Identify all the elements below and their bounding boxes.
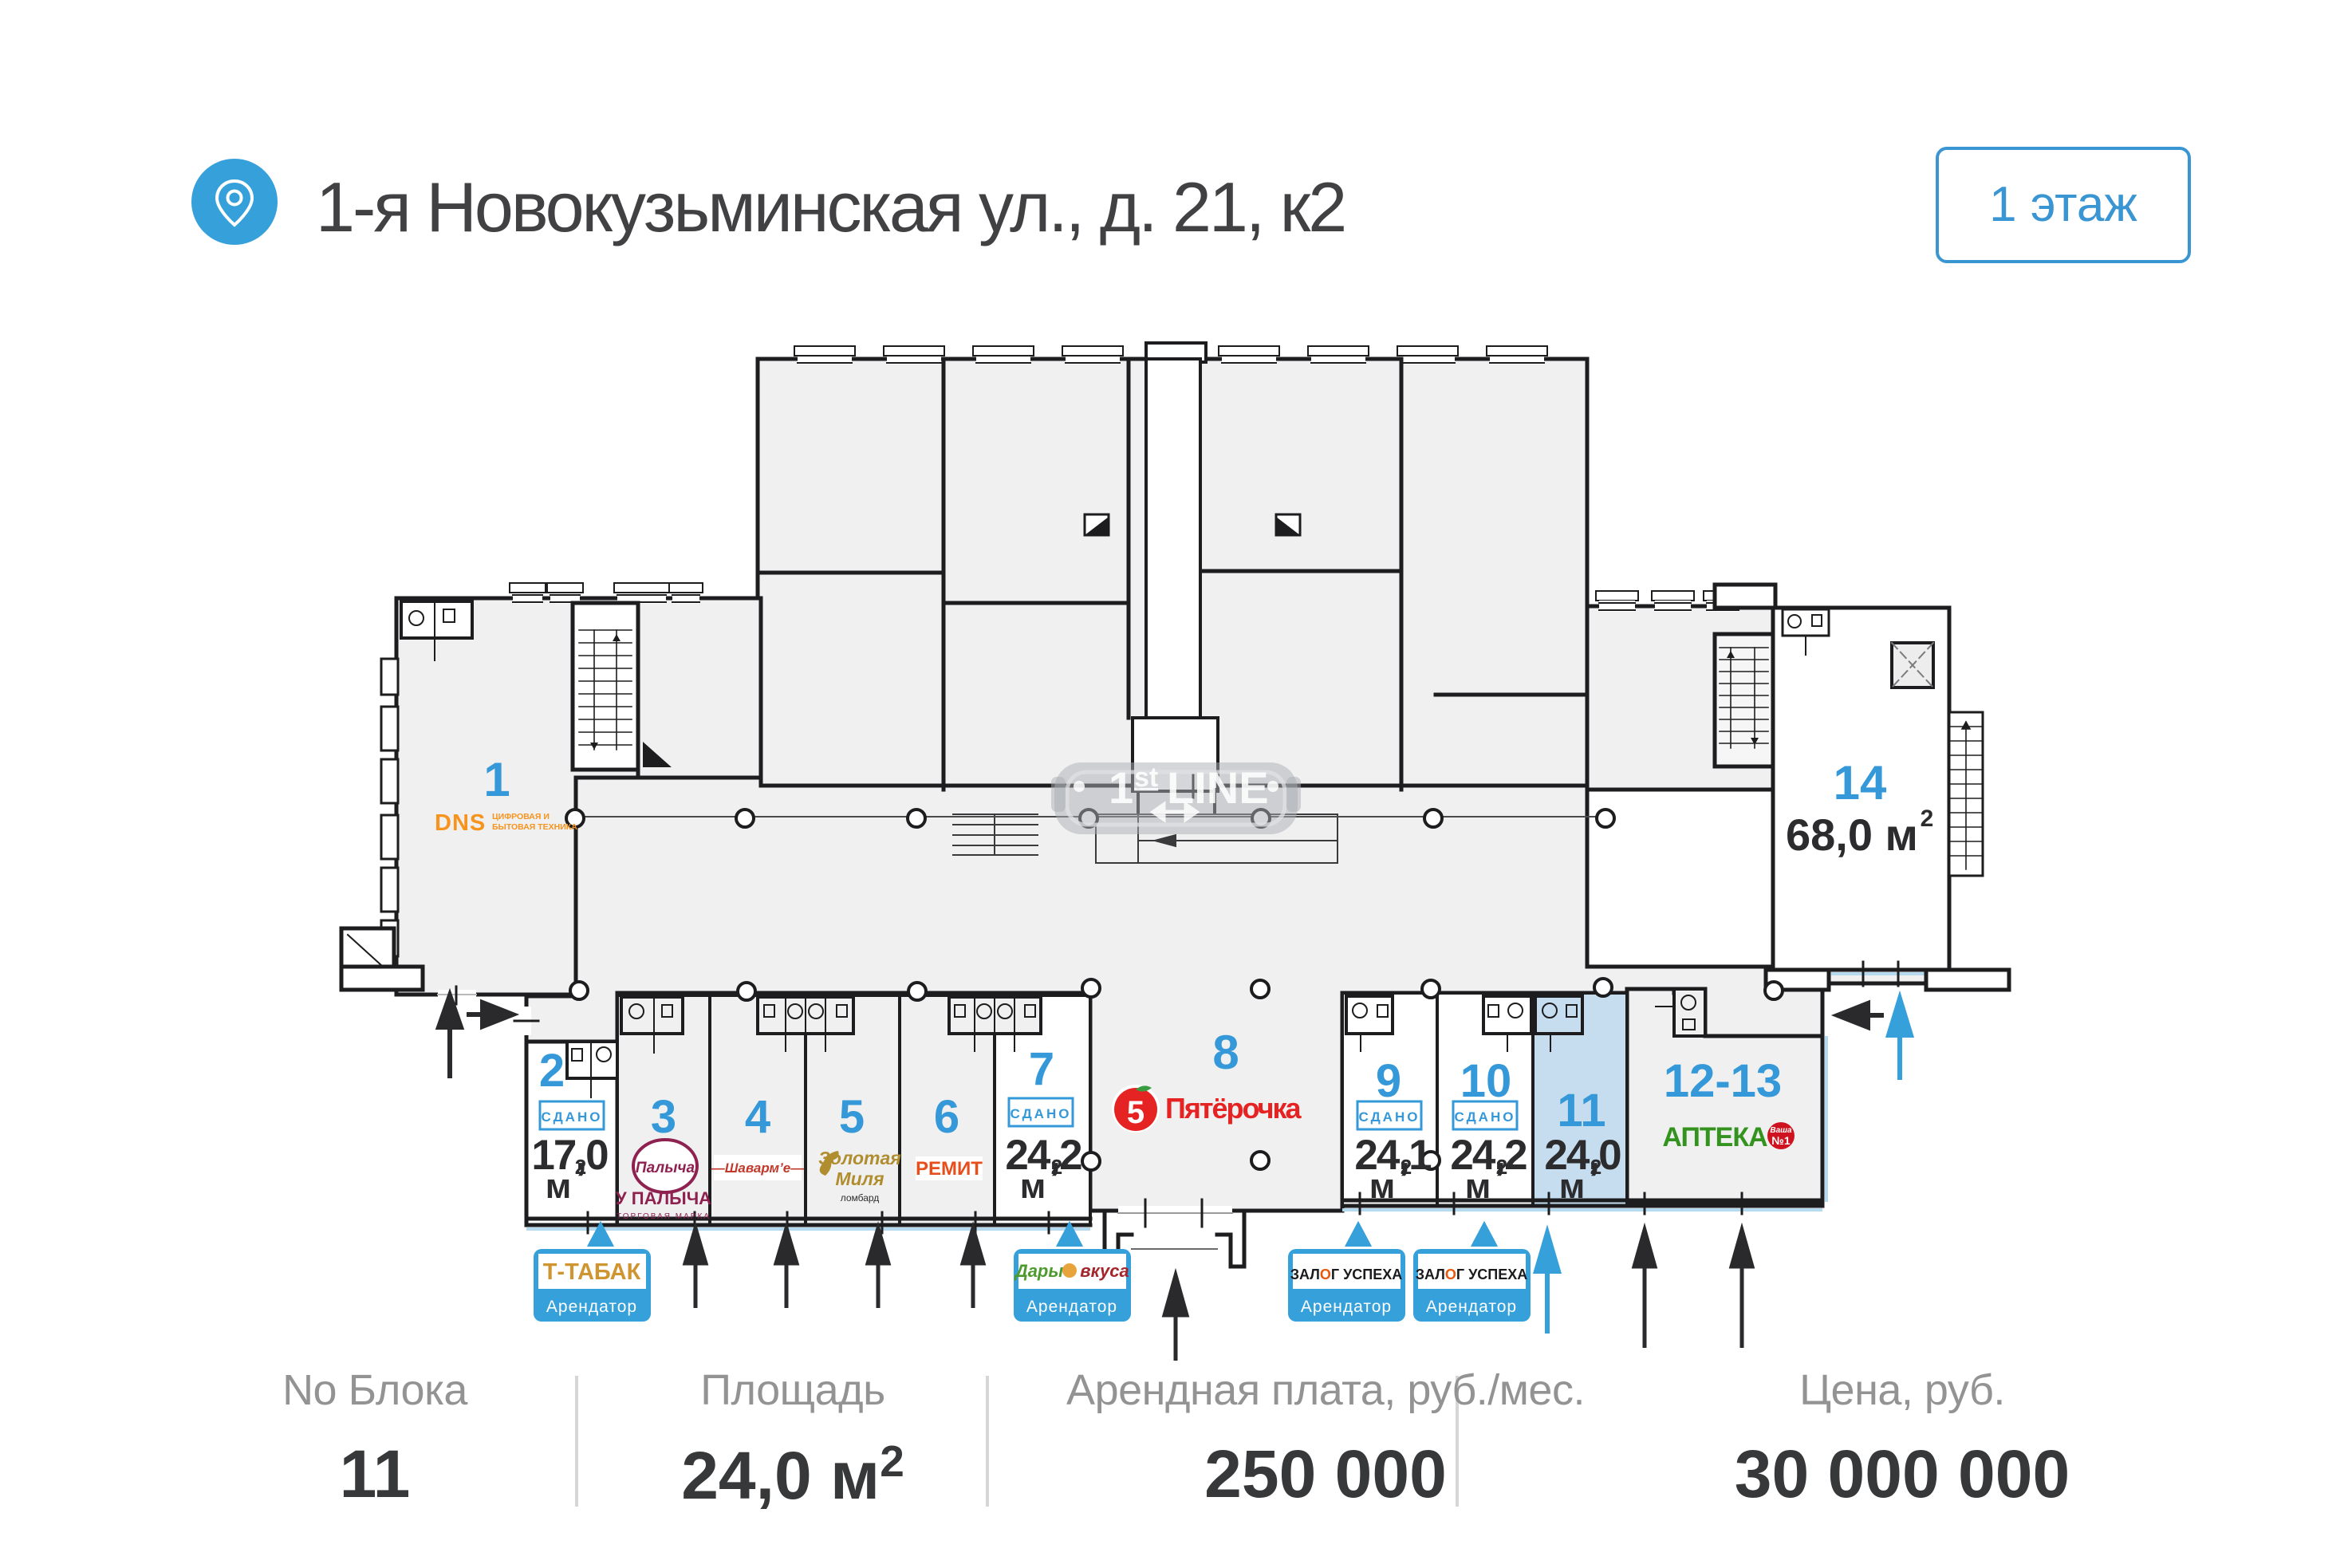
svg-text:DNS: DNS: [435, 810, 486, 836]
svg-text:ТОРГОВАЯ МАРКА: ТОРГОВАЯ МАРКА: [617, 1212, 711, 1221]
svg-text:ломбард: ломбард: [841, 1192, 880, 1204]
svg-text:2: 2: [1590, 1155, 1601, 1179]
svg-text:4: 4: [745, 1091, 770, 1143]
svg-text:№1: №1: [1771, 1134, 1791, 1147]
svg-text:2: 2: [1401, 1155, 1412, 1179]
svg-text:—Шавармʼе—: —Шавармʼе—: [711, 1160, 806, 1176]
svg-text:10: 10: [1460, 1055, 1512, 1107]
svg-text:АПТЕКА: АПТЕКА: [1662, 1122, 1767, 1152]
svg-text:Т-ТАБАК: Т-ТАБАК: [543, 1259, 641, 1285]
svg-text:5: 5: [1127, 1095, 1144, 1130]
svg-text:6: 6: [934, 1091, 959, 1143]
svg-text:Дары: Дары: [1014, 1261, 1064, 1281]
svg-text:м: м: [1559, 1167, 1586, 1206]
svg-text:Арендатор: Арендатор: [1301, 1298, 1392, 1316]
svg-text:м: м: [546, 1167, 572, 1206]
svg-text:У ПАЛЫЧА: У ПАЛЫЧА: [616, 1188, 711, 1208]
svg-text:м: м: [1020, 1167, 1046, 1206]
svg-text:9: 9: [1376, 1055, 1401, 1107]
svg-text:2: 2: [575, 1155, 586, 1179]
svg-text:Пятёрочка: Пятёрочка: [1165, 1092, 1302, 1125]
svg-text:2: 2: [1921, 806, 1934, 832]
svg-text:12-13: 12-13: [1664, 1055, 1782, 1107]
svg-text:Миля: Миля: [835, 1168, 884, 1189]
svg-text:вкуса: вкуса: [1080, 1261, 1129, 1281]
svg-text:1: 1: [483, 753, 510, 806]
svg-text:ЦИФРОВАЯ И: ЦИФРОВАЯ И: [492, 812, 550, 821]
svg-text:м: м: [1465, 1167, 1491, 1206]
svg-text:Арендатор: Арендатор: [1426, 1298, 1517, 1316]
svg-text:5: 5: [839, 1091, 865, 1143]
svg-text:14: 14: [1834, 756, 1887, 810]
svg-text:8: 8: [1212, 1026, 1239, 1079]
svg-text:2: 2: [1496, 1155, 1507, 1179]
svg-text:2: 2: [539, 1045, 565, 1097]
svg-text:СДАНО: СДАНО: [1455, 1109, 1516, 1125]
svg-text:11: 11: [1557, 1085, 1605, 1137]
svg-text:РЕМИТ: РЕМИТ: [916, 1158, 983, 1180]
svg-text:м: м: [1369, 1167, 1396, 1206]
svg-text:7: 7: [1029, 1043, 1054, 1095]
svg-text:ЗАЛОГ УСПЕХА: ЗАЛОГ УСПЕХА: [1416, 1267, 1528, 1282]
svg-text:2: 2: [1051, 1155, 1062, 1179]
svg-text:68,0 м: 68,0 м: [1786, 810, 1918, 860]
svg-text:ЗАЛОГ УСПЕХА: ЗАЛОГ УСПЕХА: [1290, 1267, 1403, 1282]
svg-text:Арендатор: Арендатор: [1026, 1298, 1117, 1316]
svg-text:3: 3: [651, 1091, 676, 1143]
svg-text:LINE: LINE: [1167, 762, 1269, 813]
svg-text:СДАНО: СДАНО: [1011, 1106, 1072, 1121]
svg-text:Палыча: Палыча: [636, 1160, 695, 1176]
svg-text:СДАНО: СДАНО: [542, 1109, 603, 1125]
svg-text:Арендатор: Арендатор: [546, 1298, 637, 1316]
svg-text:СДАНО: СДАНО: [1359, 1109, 1420, 1125]
svg-text:БЫТОВАЯ ТЕХНИКА: БЫТОВАЯ ТЕХНИКА: [492, 822, 577, 832]
svg-text:1: 1: [1109, 762, 1133, 813]
svg-text:st: st: [1134, 762, 1158, 793]
